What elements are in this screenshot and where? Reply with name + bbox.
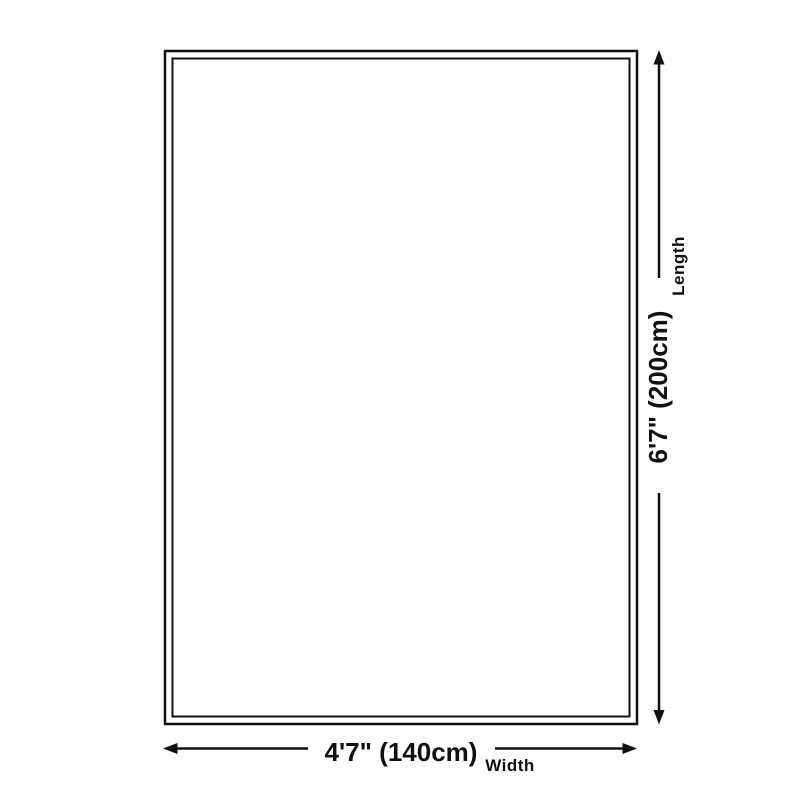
diagram-canvas: Length 6'7" (200cm) 4'7" (140cm) Width	[0, 0, 800, 800]
dimension-diagram: Length 6'7" (200cm) 4'7" (140cm) Width	[0, 0, 800, 800]
length-dimension: Length 6'7" (200cm)	[643, 50, 688, 725]
width-dimension: 4'7" (140cm) Width	[163, 737, 637, 775]
product-outline-outer	[165, 51, 637, 724]
arrow-down-icon	[654, 710, 665, 725]
arrow-right-icon	[623, 743, 638, 754]
length-label: Length	[669, 236, 688, 296]
arrow-up-icon	[654, 50, 665, 65]
width-label: Width	[485, 756, 535, 775]
width-value: 4'7" (140cm)	[325, 737, 478, 767]
product-outline	[165, 51, 637, 724]
arrow-left-icon	[163, 743, 178, 754]
length-value: 6'7" (200cm)	[643, 311, 673, 464]
